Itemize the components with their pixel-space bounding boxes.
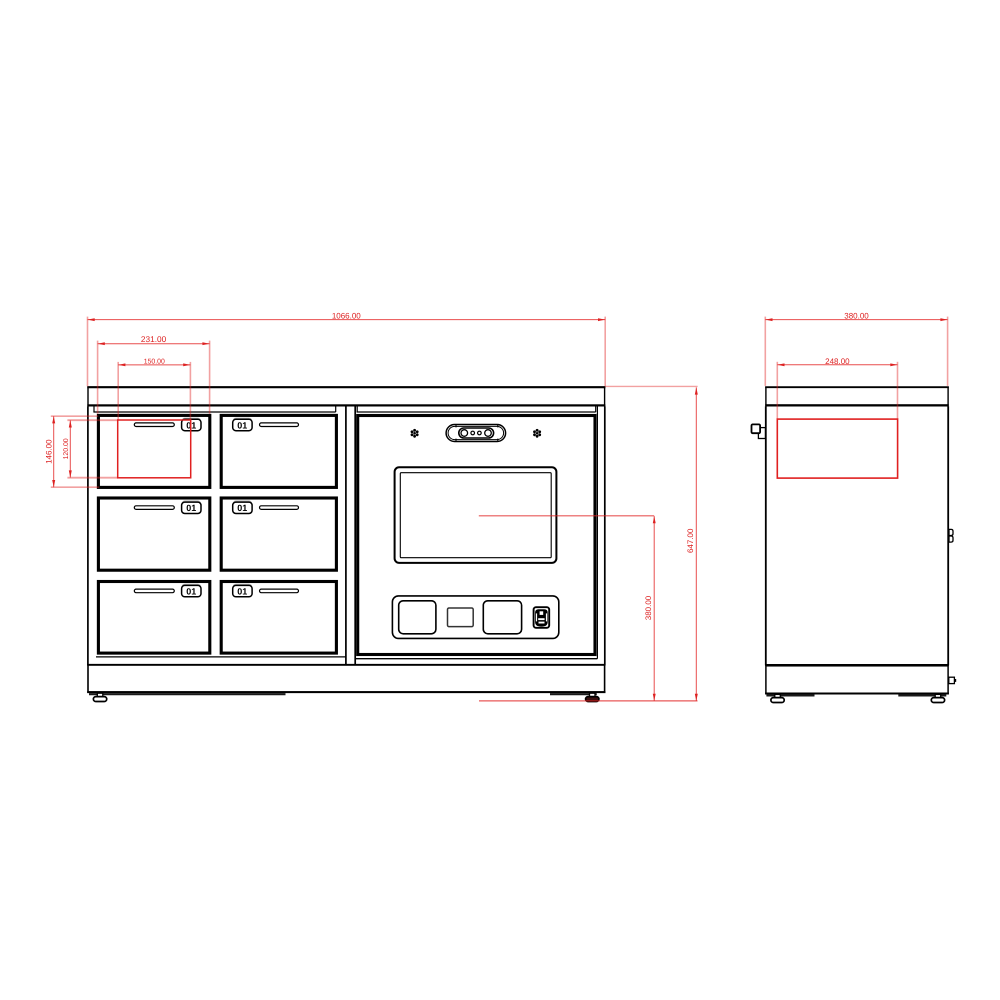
svg-text:146.00: 146.00 — [44, 439, 53, 464]
svg-text:01: 01 — [186, 586, 196, 596]
svg-text:150.00: 150.00 — [144, 358, 165, 365]
svg-text:380.00: 380.00 — [844, 312, 869, 321]
svg-text:248.00: 248.00 — [825, 357, 850, 366]
svg-text:1066.00: 1066.00 — [332, 312, 361, 321]
svg-text:231.00: 231.00 — [141, 334, 167, 344]
svg-text:647.00: 647.00 — [686, 528, 695, 553]
svg-text:120.00: 120.00 — [63, 438, 70, 459]
svg-text:01: 01 — [237, 503, 247, 513]
svg-text:01: 01 — [186, 503, 196, 513]
svg-text:380.00: 380.00 — [644, 595, 653, 620]
svg-text:01: 01 — [237, 586, 247, 596]
svg-text:01: 01 — [237, 420, 247, 430]
